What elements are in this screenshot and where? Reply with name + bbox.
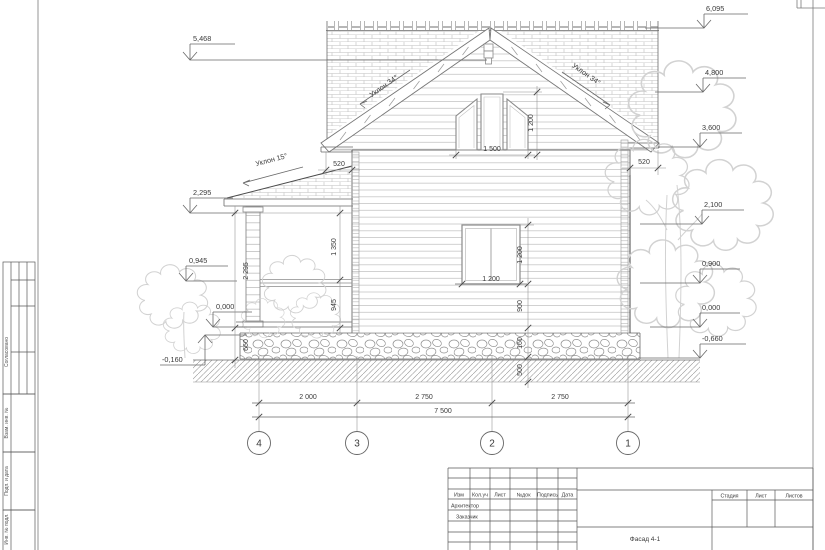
margin-label-vzam: Взам. инв. № <box>4 408 10 439</box>
tb-col-izm: Изм <box>454 493 464 499</box>
level-0945: 0,945 <box>189 256 207 265</box>
downpipe-left <box>352 152 359 333</box>
dim-porch-height: 2 295 <box>243 262 250 280</box>
tb-col-podpis: Подпись <box>537 493 558 499</box>
margin-label-inv: Инв. № подл. <box>4 513 10 544</box>
dim-window-width: 1 200 <box>482 276 500 283</box>
level-6095: 6,095 <box>706 4 724 13</box>
level-2295: 2,295 <box>193 188 211 197</box>
level-0000-right: 0,000 <box>702 303 720 312</box>
dim-attic-width: 1 500 <box>483 146 501 153</box>
format-stamp-box <box>797 0 825 8</box>
dim-eave-right: 520 <box>638 159 650 166</box>
margin-label-approved: Согласовано <box>4 337 10 367</box>
axis-4: 4 <box>256 439 262 450</box>
level-5468: 5,468 <box>193 34 211 43</box>
slope-label-porch: Уклон 15° <box>254 151 288 168</box>
title-block: Изм Кол.уч Лист №док Подпись Дата Архите… <box>448 468 813 550</box>
tb-sheet: Лист <box>755 494 767 500</box>
elevation-drawing: Согласовано Взам. инв. № Подп. и дата Ин… <box>0 0 825 550</box>
dim-bay-4-3: 2 000 <box>299 394 317 401</box>
tb-col-ndok: №док <box>516 493 531 499</box>
stone-foundation <box>240 333 640 359</box>
drawing-sheet: Согласовано Взам. инв. № Подп. и дата Ин… <box>0 0 825 550</box>
dim-eave-left: 520 <box>333 161 345 168</box>
level-3600: 3,600 <box>702 123 720 132</box>
tb-sheets: Листов <box>785 494 802 500</box>
ridge-tiles <box>328 21 658 30</box>
ground-band <box>193 360 700 382</box>
dim-porch-rail: 945 <box>331 299 338 311</box>
tb-col-data: Дата <box>562 493 574 499</box>
level-2100: 2,100 <box>704 200 722 209</box>
dim-sill-height: 900 <box>517 300 524 312</box>
dim-window-height: 1 200 <box>517 246 524 264</box>
dim-porch-base: 660 <box>243 339 250 351</box>
dim-bay-3-2: 2 750 <box>415 394 433 401</box>
dim-footing: 500 <box>517 364 524 376</box>
level-m0160: -0,160 <box>162 355 183 364</box>
dim-bay-2-1: 2 750 <box>551 394 569 401</box>
dim-porch-top: 1 350 <box>331 238 338 256</box>
margin-blocks: Согласовано Взам. инв. № Подп. и дата Ин… <box>3 262 35 550</box>
axis-bubbles <box>248 432 640 455</box>
porch-railing <box>260 280 352 287</box>
dim-attic-height: 1 200 <box>528 114 535 132</box>
level-0000-left: 0,000 <box>216 302 234 311</box>
level-0900: 0,900 <box>702 259 720 268</box>
tb-col-koluch: Кол.уч <box>472 493 488 499</box>
tb-col-list: Лист <box>494 493 506 499</box>
margin-label-podp: Подп. и дата <box>4 466 10 496</box>
dim-total-span: 7 500 <box>434 408 452 415</box>
tb-stage: Стадия <box>720 494 738 500</box>
axis-3: 3 <box>354 439 360 450</box>
tb-role-architect: Архитектор <box>451 504 479 510</box>
level-4800: 4,800 <box>705 68 723 77</box>
tb-role-customer: Заказчик <box>456 515 478 521</box>
tb-doc-title: Фасад 4-1 <box>630 536 661 543</box>
gable-finial <box>484 44 493 64</box>
axis-1: 1 <box>625 439 631 450</box>
dim-plinth: 160 <box>517 337 524 349</box>
axis-2: 2 <box>489 439 495 450</box>
level-m0660: -0,660 <box>702 334 723 343</box>
